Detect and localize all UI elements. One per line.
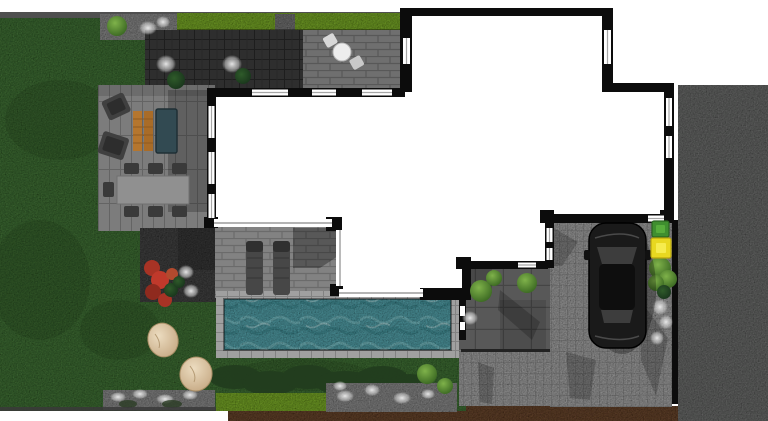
swimming-pool xyxy=(216,291,459,358)
top-hedge-gravel-gap xyxy=(275,14,295,30)
car-roof xyxy=(599,264,635,310)
daybed xyxy=(156,109,177,153)
lounger-2-headrest xyxy=(273,241,290,252)
street-boundary-wall xyxy=(672,220,678,404)
site-plan-canvas xyxy=(0,0,768,421)
parked-car xyxy=(584,222,656,354)
shrub-charcoal-2 xyxy=(235,68,251,84)
wood-lounger-1 xyxy=(133,111,142,151)
green-bin-lid xyxy=(656,225,665,233)
yellow-bin-lid xyxy=(656,243,666,253)
bush-top-left xyxy=(107,16,127,36)
dining-table xyxy=(117,176,189,204)
dining-chair xyxy=(124,163,139,174)
car-mirror-left xyxy=(584,250,590,260)
dining-chair xyxy=(103,182,114,197)
corner-block-4 xyxy=(540,210,554,223)
grass-tuft-top-1 xyxy=(139,21,157,35)
wall-top xyxy=(400,8,612,16)
car-rear-window xyxy=(601,310,633,323)
lounger-1-headrest xyxy=(246,241,263,252)
bottom-left-margin xyxy=(0,411,228,421)
shrub-bottom-2 xyxy=(437,378,453,394)
car-windshield xyxy=(597,247,637,264)
patio-top-shading xyxy=(98,85,215,96)
corner-block-6 xyxy=(456,257,471,269)
dining-chair xyxy=(172,163,187,174)
grass-tuft-charcoal-1 xyxy=(156,55,176,73)
waste-bins xyxy=(651,221,671,258)
lawn-edge-line xyxy=(0,407,216,411)
dining-chair xyxy=(124,206,139,217)
courtyard-shrub-2 xyxy=(486,270,502,286)
dining-chair xyxy=(148,163,163,174)
bistro-table xyxy=(333,43,351,61)
courtyard-grass-tuft xyxy=(462,311,478,325)
grass-tuft-top-2 xyxy=(156,16,170,28)
wood-lounger-2 xyxy=(144,111,153,151)
car-mirror-right xyxy=(645,250,651,260)
dining-chair xyxy=(148,206,163,217)
dining-chair xyxy=(172,206,187,217)
shrub-charcoal-1 xyxy=(167,71,185,89)
bottom-bright-hedge xyxy=(216,393,326,411)
pool-water xyxy=(224,299,451,350)
site-plan-render xyxy=(0,0,768,421)
dark-paver-landing xyxy=(178,228,218,270)
courtyard-shrub-3 xyxy=(517,273,537,293)
shrub-bottom-1 xyxy=(417,364,437,384)
street-road xyxy=(678,85,768,421)
